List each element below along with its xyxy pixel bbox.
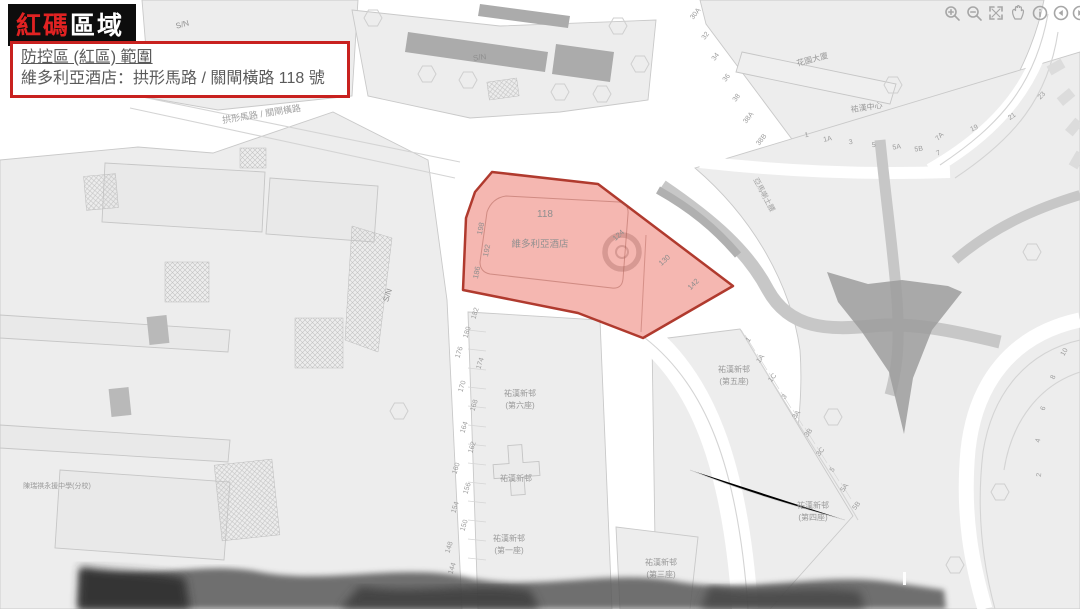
zone-info-box: 防控區 (紅區) 範圍 維多利亞酒店：拱形馬路 / 關閘橫路 118 號 [10,41,350,98]
school-label: 陳瑞祺永援中學(分校) [23,481,91,490]
svg-text:祐漢新邨: 祐漢新邨 [500,473,532,483]
street-number-label: 5A [892,143,902,151]
svg-text:祐漢新邨: 祐漢新邨 [504,388,536,398]
sn-label: S/N [472,52,487,63]
svg-text:(第六座): (第六座) [505,400,535,410]
svg-text:祐漢新邨: 祐漢新邨 [645,557,677,567]
svg-text:(第三座): (第三座) [646,569,676,579]
zone-info-line1: 防控區 (紅區) 範圍 [21,47,339,68]
svg-text:(第四座): (第四座) [798,512,828,522]
zone-number-label: 118 [537,209,553,220]
zone-info-line2: 維多利亞酒店：拱形馬路 / 關閘橫路 118 號 [21,68,339,89]
svg-text:(第一座): (第一座) [494,545,524,555]
hotel-name-label: 維多利亞酒店 [511,238,568,250]
scale-tick [903,572,906,585]
svg-text:祐漢新邨: 祐漢新邨 [493,533,525,543]
map-viewer-window: S/NS/NS/N 拱形馬路 / 關閘橫路 亞馬喇土腰 陳瑞祺永援中學(分校) … [0,0,1080,609]
street-number-label: 5B [914,145,924,153]
red-code-area-badge: 紅碼區域 [8,4,136,46]
badge-red-text: 紅碼 [16,12,70,40]
badge-white-text: 區域 [70,12,124,40]
svg-text:(第五座): (第五座) [719,376,749,386]
svg-text:祐漢新邨: 祐漢新邨 [718,364,750,374]
svg-text:祐漢新邨: 祐漢新邨 [797,500,829,510]
street-number-label: 2 [1036,473,1043,478]
